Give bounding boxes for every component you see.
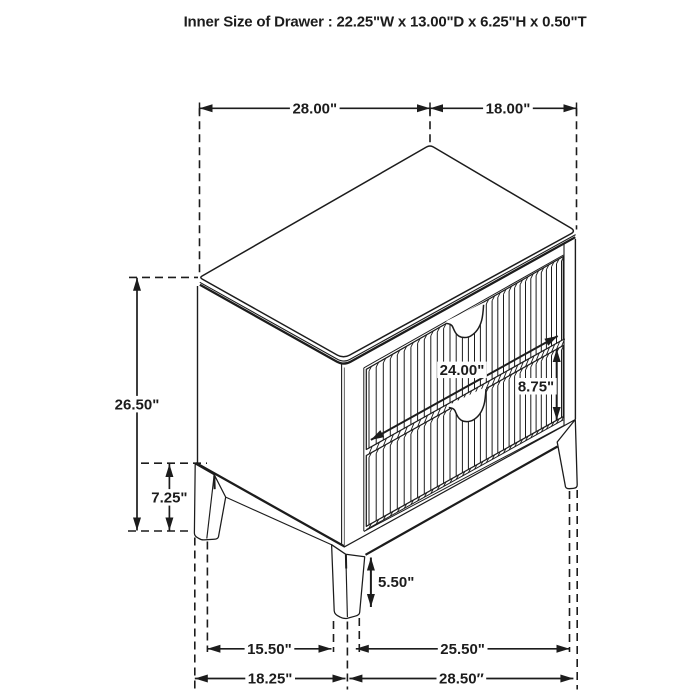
svg-text:18.00": 18.00" xyxy=(486,101,531,118)
svg-text:28.00": 28.00" xyxy=(292,101,337,118)
svg-text:24.00": 24.00" xyxy=(440,362,485,379)
svg-text:26.50": 26.50" xyxy=(115,396,160,413)
svg-text:18.25": 18.25" xyxy=(248,671,293,688)
svg-text:25.50": 25.50" xyxy=(440,641,485,658)
svg-text:7.25": 7.25" xyxy=(151,489,187,506)
svg-text:15.50": 15.50" xyxy=(247,641,292,658)
svg-text:8.75": 8.75" xyxy=(518,378,554,395)
svg-text:28.50″: 28.50″ xyxy=(439,671,484,688)
svg-text:5.50": 5.50" xyxy=(378,574,414,591)
svg-text:Inner Size of Drawer : 22.25"W: Inner Size of Drawer : 22.25"W x 13.00"D… xyxy=(184,14,587,31)
